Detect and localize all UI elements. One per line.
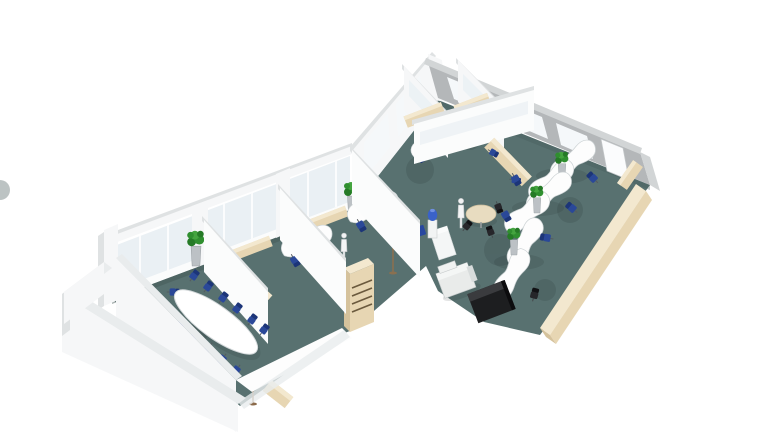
slatted-cabinet xyxy=(344,258,374,332)
office-floorplan-render: 3D isometric cutaway rendering of an off… xyxy=(0,0,768,432)
floorplan-svg: 3D isometric cutaway rendering of an off… xyxy=(0,0,768,432)
water-cooler xyxy=(428,209,438,238)
